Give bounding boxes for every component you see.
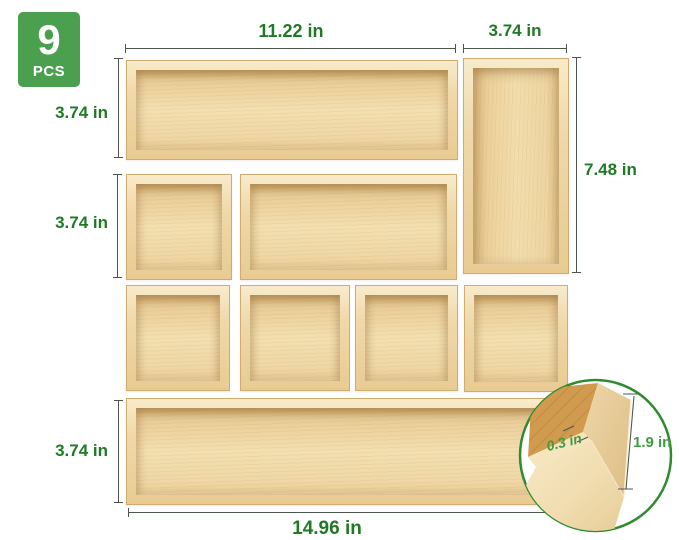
tray-square-row3-3 — [355, 285, 458, 391]
label-side-tray-width: 3.74 in — [455, 21, 575, 41]
label-side-tray-height: 7.48 in — [584, 160, 637, 180]
tray-medium-row2 — [240, 174, 457, 280]
label-top-tray-width: 11.22 in — [231, 21, 351, 42]
piece-count-unit: PCS — [33, 63, 65, 80]
product-dimension-diagram: 9 PCS 11.22 in 3.74 in 3.74 in 7.48 in 3… — [0, 0, 679, 540]
tray-medium-row2-interior — [250, 184, 447, 270]
tray-square-row3-2 — [240, 285, 350, 391]
tray-square-row3-2-interior — [250, 295, 340, 381]
tray-long-bottom — [126, 398, 570, 505]
measure-line-side-height — [576, 57, 577, 273]
tray-wide-top — [126, 60, 458, 160]
tray-square-row2 — [126, 174, 232, 280]
measure-line-bottom-width — [128, 512, 568, 513]
measure-line-top-width — [125, 48, 456, 49]
tray-square-row3-4-interior — [474, 295, 558, 382]
tray-long-bottom-interior — [136, 408, 560, 495]
piece-count-badge: 9 PCS — [18, 12, 80, 87]
piece-count-number: 9 — [37, 19, 60, 61]
label-long-tray-height: 3.74 in — [34, 441, 108, 461]
tray-square-row3-3-interior — [365, 295, 448, 381]
tray-square-row3-1 — [126, 285, 230, 391]
tray-square-row2-interior — [136, 184, 222, 270]
label-long-tray-width: 14.96 in — [247, 518, 407, 540]
label-wall-depth: 1.9 in — [633, 434, 671, 451]
measure-line-row1-height — [118, 58, 119, 158]
measure-line-side-width — [463, 48, 567, 49]
corner-detail-inset: 0.3 in 1.9 in — [517, 377, 674, 534]
measure-line-row2-height — [117, 174, 118, 278]
tray-square-row3-1-interior — [136, 295, 220, 381]
tray-square-row3-4 — [464, 285, 568, 392]
tray-tall-right — [463, 58, 569, 274]
label-row2-tray-height: 3.74 in — [34, 213, 108, 233]
measure-line-bottom-height — [118, 400, 119, 503]
label-top-tray-height: 3.74 in — [34, 103, 108, 123]
tray-tall-right-interior — [473, 68, 559, 264]
tray-wide-top-interior — [136, 70, 448, 150]
